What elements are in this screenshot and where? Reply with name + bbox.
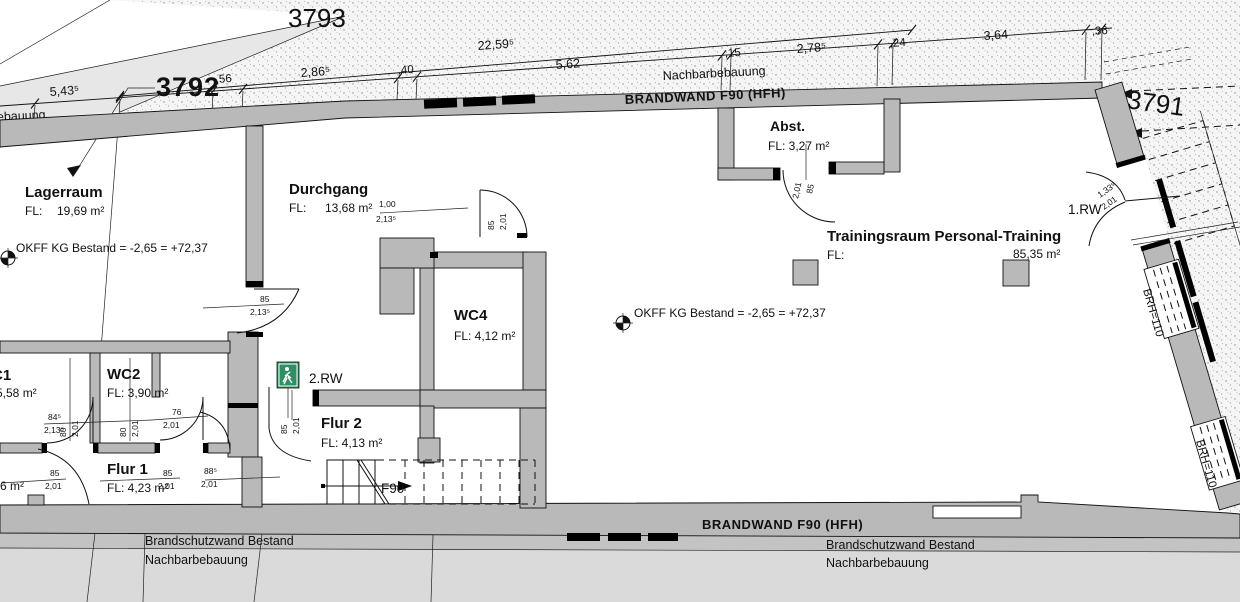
dim-pos1-w: 80 [58, 427, 68, 437]
wall-niche [933, 506, 1021, 518]
dim-b3-w: 88⁵ [204, 466, 217, 476]
room-lagerraum-area: 19,69 m² [57, 204, 104, 218]
room-wc1: C1 [0, 367, 11, 384]
column [793, 260, 818, 285]
dim-40: ,40 [397, 64, 414, 77]
floorplan-page: 5,43⁵ ,56 2,86⁵ ,40 5,62 ,15 2,78⁵ ,24 3… [0, 0, 1240, 602]
dim-543: 5,43⁵ [49, 83, 79, 99]
brandwand-bottom: BRANDWAND F90 (HFH) Brandschutzwand Best… [0, 495, 1240, 602]
dim-door-wc1-w: 84⁵ [48, 412, 61, 422]
dim-door-rw2-h: 2,01 [291, 417, 301, 434]
floorplan-canvas: 5,43⁵ ,56 2,86⁵ ,40 5,62 ,15 2,78⁵ ,24 3… [0, 0, 1240, 602]
dim-562: 5,62 [555, 56, 580, 72]
dim-door-durchgang-w: 1,00 [379, 199, 396, 209]
room-abst-area: FL: 3,27 m² [768, 139, 829, 153]
room-wc2-area: FL: 3,90 m² [107, 386, 168, 400]
dim-36: ,36 [1091, 25, 1108, 38]
dim-b1-w: 85 [50, 468, 60, 478]
label-okff-1: OKFF KG Bestand = -2,65 = +72,37 [16, 241, 208, 255]
parcel-3793: 3793 [288, 3, 346, 33]
dim-overall: 22,59⁵ [477, 36, 514, 53]
dim-door-rw2-w: 85 [279, 424, 289, 434]
dim-2785: 2,78⁵ [796, 40, 826, 56]
dim-door-lager-w: 85 [260, 294, 270, 304]
parcel-3792: 3792 [156, 72, 220, 102]
label-nachbarbebauung-bottom-right: Nachbarbebauung [826, 556, 929, 570]
room-lagerraum: Lagerraum [25, 184, 103, 201]
dim-door-wc2-h: 2,01 [163, 420, 180, 430]
dim-b2-w: 85 [163, 468, 173, 478]
dim-door-wc2-w: 76 [172, 407, 182, 417]
room-training-area: 85,35 m² [1013, 247, 1060, 261]
dim-364: 3,64 [983, 27, 1008, 43]
dim-2865: 2,86⁵ [300, 64, 330, 80]
room-training: Trainingsraum Personal-Training [827, 228, 1061, 245]
room-wc4: WC4 [454, 307, 488, 324]
dim-b1-h: 2,01 [45, 481, 62, 491]
label-brandschutzwand-right: Brandschutzwand Bestand [826, 538, 975, 552]
dim-pos2-w: 80 [118, 427, 128, 437]
dim-door-durchgang-h: 2,13⁵ [376, 214, 396, 224]
dim-pos2-h: 2,01 [130, 420, 140, 437]
running-man-icon [285, 367, 289, 371]
label-okff-2: OKFF KG Bestand = -2,65 = +72,37 [634, 306, 826, 320]
dim-b2-h: 2,01 [158, 481, 175, 491]
dim-pos1-h: 2,01 [70, 420, 80, 437]
room-durchgang-fl: FL: [289, 201, 306, 215]
label-rw2: 2.RW [309, 371, 343, 386]
dim-15: ,15 [724, 47, 741, 60]
label-brandschutzwand-left: Brandschutzwand Bestand [145, 534, 294, 548]
label-rw1: 1.RW [1068, 202, 1102, 217]
room-flur2-area: FL: 4,13 m² [321, 436, 382, 450]
dim-door-wc4-h: 2,01 [498, 213, 508, 230]
room-left-area: 6 m² [0, 479, 24, 493]
room-durchgang-area: 13,68 m² [325, 201, 372, 215]
room-wc4-area: FL: 4,12 m² [454, 329, 515, 343]
column [1003, 260, 1029, 286]
room-durchgang: Durchgang [289, 181, 368, 198]
room-flur1: Flur 1 [107, 461, 148, 478]
building-interior [0, 96, 1213, 514]
room-wc2: WC2 [107, 366, 140, 383]
label-f90-stairs: F90 [381, 481, 404, 496]
dim-24: ,24 [889, 37, 906, 50]
dim-door-lager-h: 2,13⁵ [250, 307, 270, 317]
dim-b3-h: 2,01 [201, 479, 218, 489]
room-lagerraum-fl: FL: [25, 204, 42, 218]
dim-door-wc4-w: 85 [486, 220, 496, 230]
room-abst: Abst. [770, 118, 805, 134]
room-wc1-area: 5,58 m² [0, 386, 37, 400]
room-flur2: Flur 2 [321, 415, 362, 432]
label-brandwand-bottom: BRANDWAND F90 (HFH) [702, 517, 863, 532]
label-nachbarbebauung-bottom-left: Nachbarbebauung [145, 553, 248, 567]
room-training-fl: FL: [827, 248, 844, 262]
